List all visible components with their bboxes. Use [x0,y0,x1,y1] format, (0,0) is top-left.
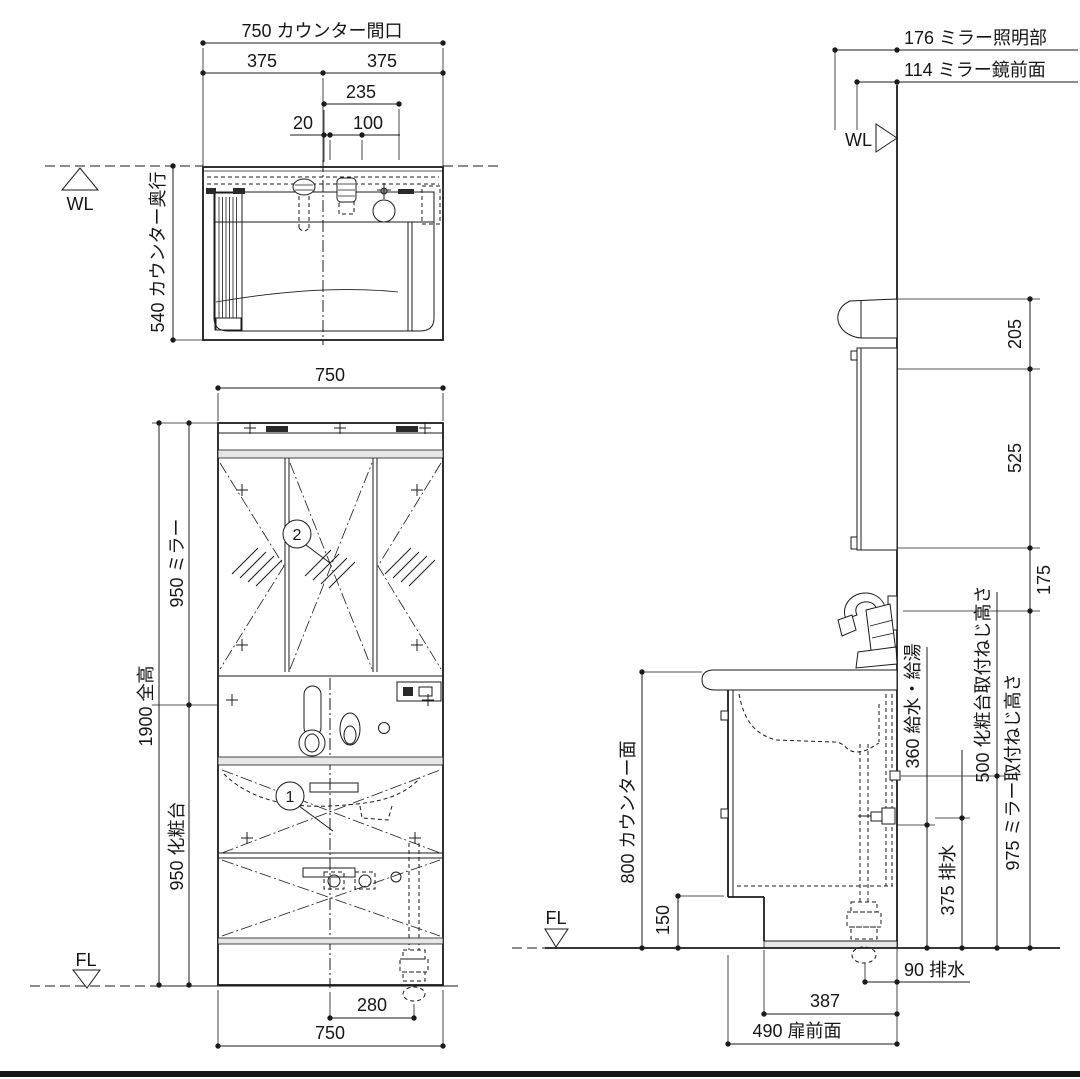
dim-left-half: 375 [247,51,277,71]
fl-marker-front [73,970,100,988]
fl-label-side: FL [545,908,566,928]
vanity-lower-door-front [222,843,440,950]
dim-front-width-bottom: 750 [315,1023,345,1043]
callout-2 [283,520,330,563]
counter-side [702,670,897,690]
dim-387: 387 [810,991,840,1011]
drain-knob-front [340,713,360,745]
drain-trap-front [400,950,428,1001]
callout-2-label: 2 [293,527,302,544]
dim-vanity-height: 950 化粧台 [167,801,187,890]
vanity-upper-door-front [222,770,440,853]
valve-handle-plan [377,183,391,199]
mount-screw-side [890,771,900,780]
dim-counter-depth: 540 カウンター奥行 [148,171,168,332]
dim-supply-height: 360 給水・給湯 [903,643,923,768]
dim-light-depth: 176 ミラー照明部 [904,28,1047,48]
dim-100: 100 [353,113,383,133]
mirror-cabinet-side [851,348,897,550]
dim-counter-width: 750 カウンター間口 [241,21,402,41]
mirror-light-side [838,299,897,338]
dim-drain-wall-offset: 90 排水 [904,960,965,980]
faucet-plan [293,179,315,231]
upper-door-handle [310,783,358,792]
dim-mirror-height: 950 ミラー [167,518,187,607]
callout-1-label: 1 [286,789,295,806]
dim-right-half: 375 [367,51,397,71]
faucet-lever-front [304,686,321,736]
front-elevation: 750 2 [30,365,458,1049]
supply-fitting-side [871,812,882,821]
light-band-front [218,422,443,458]
front-left-dimensions [152,420,218,987]
mirror-doors-front [220,458,441,672]
drain-trap-side [851,902,877,912]
vanity-dimension-drawing: 750 カウンター間口 375 375 235 20 100 540 カウンター… [0,0,1080,1079]
wl-marker-triangle [62,168,98,190]
wl-label-side: WL [845,130,872,150]
front-top-dimension [215,385,445,421]
plan-view: 750 カウンター間口 375 375 235 20 100 540 カウンター… [45,21,500,345]
wl-marker-side [876,124,897,152]
dim-mirror-screw-height: 975 ミラー取付ねじ高さ [1003,673,1023,870]
heater-coil-plan [206,188,245,330]
fl-label-front: FL [75,950,96,970]
side-elevation: 176 ミラー照明部 114 ミラー鏡前面 WL [512,28,1078,1047]
dim-175: 175 [1034,565,1054,595]
dim-20: 20 [293,113,313,133]
dim-vanity-screw-height: 500 化粧台取付ねじ高さ [973,585,993,782]
dim-mirror-face-depth: 114 ミラー鏡前面 [904,60,1046,80]
technical-drawing-page: 750 カウンター間口 375 375 235 20 100 540 カウンター… [0,0,1080,1079]
small-knob-front [379,723,390,734]
dim-total-height: 1900 全高 [136,665,156,746]
dim-front-width-top: 750 [315,365,345,385]
cabinet-side [721,690,900,963]
dim-drain-height: 375 排水 [938,844,958,915]
dim-drain-offset: 280 [357,995,387,1015]
dim-door-face: 490 扉前面 [752,1021,841,1041]
plinth-front [218,938,443,944]
drain-lever-plan [337,178,356,214]
lower-door-handle [303,868,355,877]
page-bottom-rule [0,1071,1080,1077]
faucet-side [838,593,897,668]
wl-label-plan: WL [67,194,94,214]
overflow-hole-plan [373,200,395,222]
dim-toe-kick: 150 [653,905,673,935]
dim-235: 235 [346,82,376,102]
dim-counter-height: 800 カウンター面 [618,740,638,883]
fl-marker-side [545,929,568,947]
dim-525: 525 [1005,443,1025,473]
side-left-dimensions [639,669,724,950]
dim-205: 205 [1005,319,1025,349]
counter-plan-outline [203,160,443,345]
